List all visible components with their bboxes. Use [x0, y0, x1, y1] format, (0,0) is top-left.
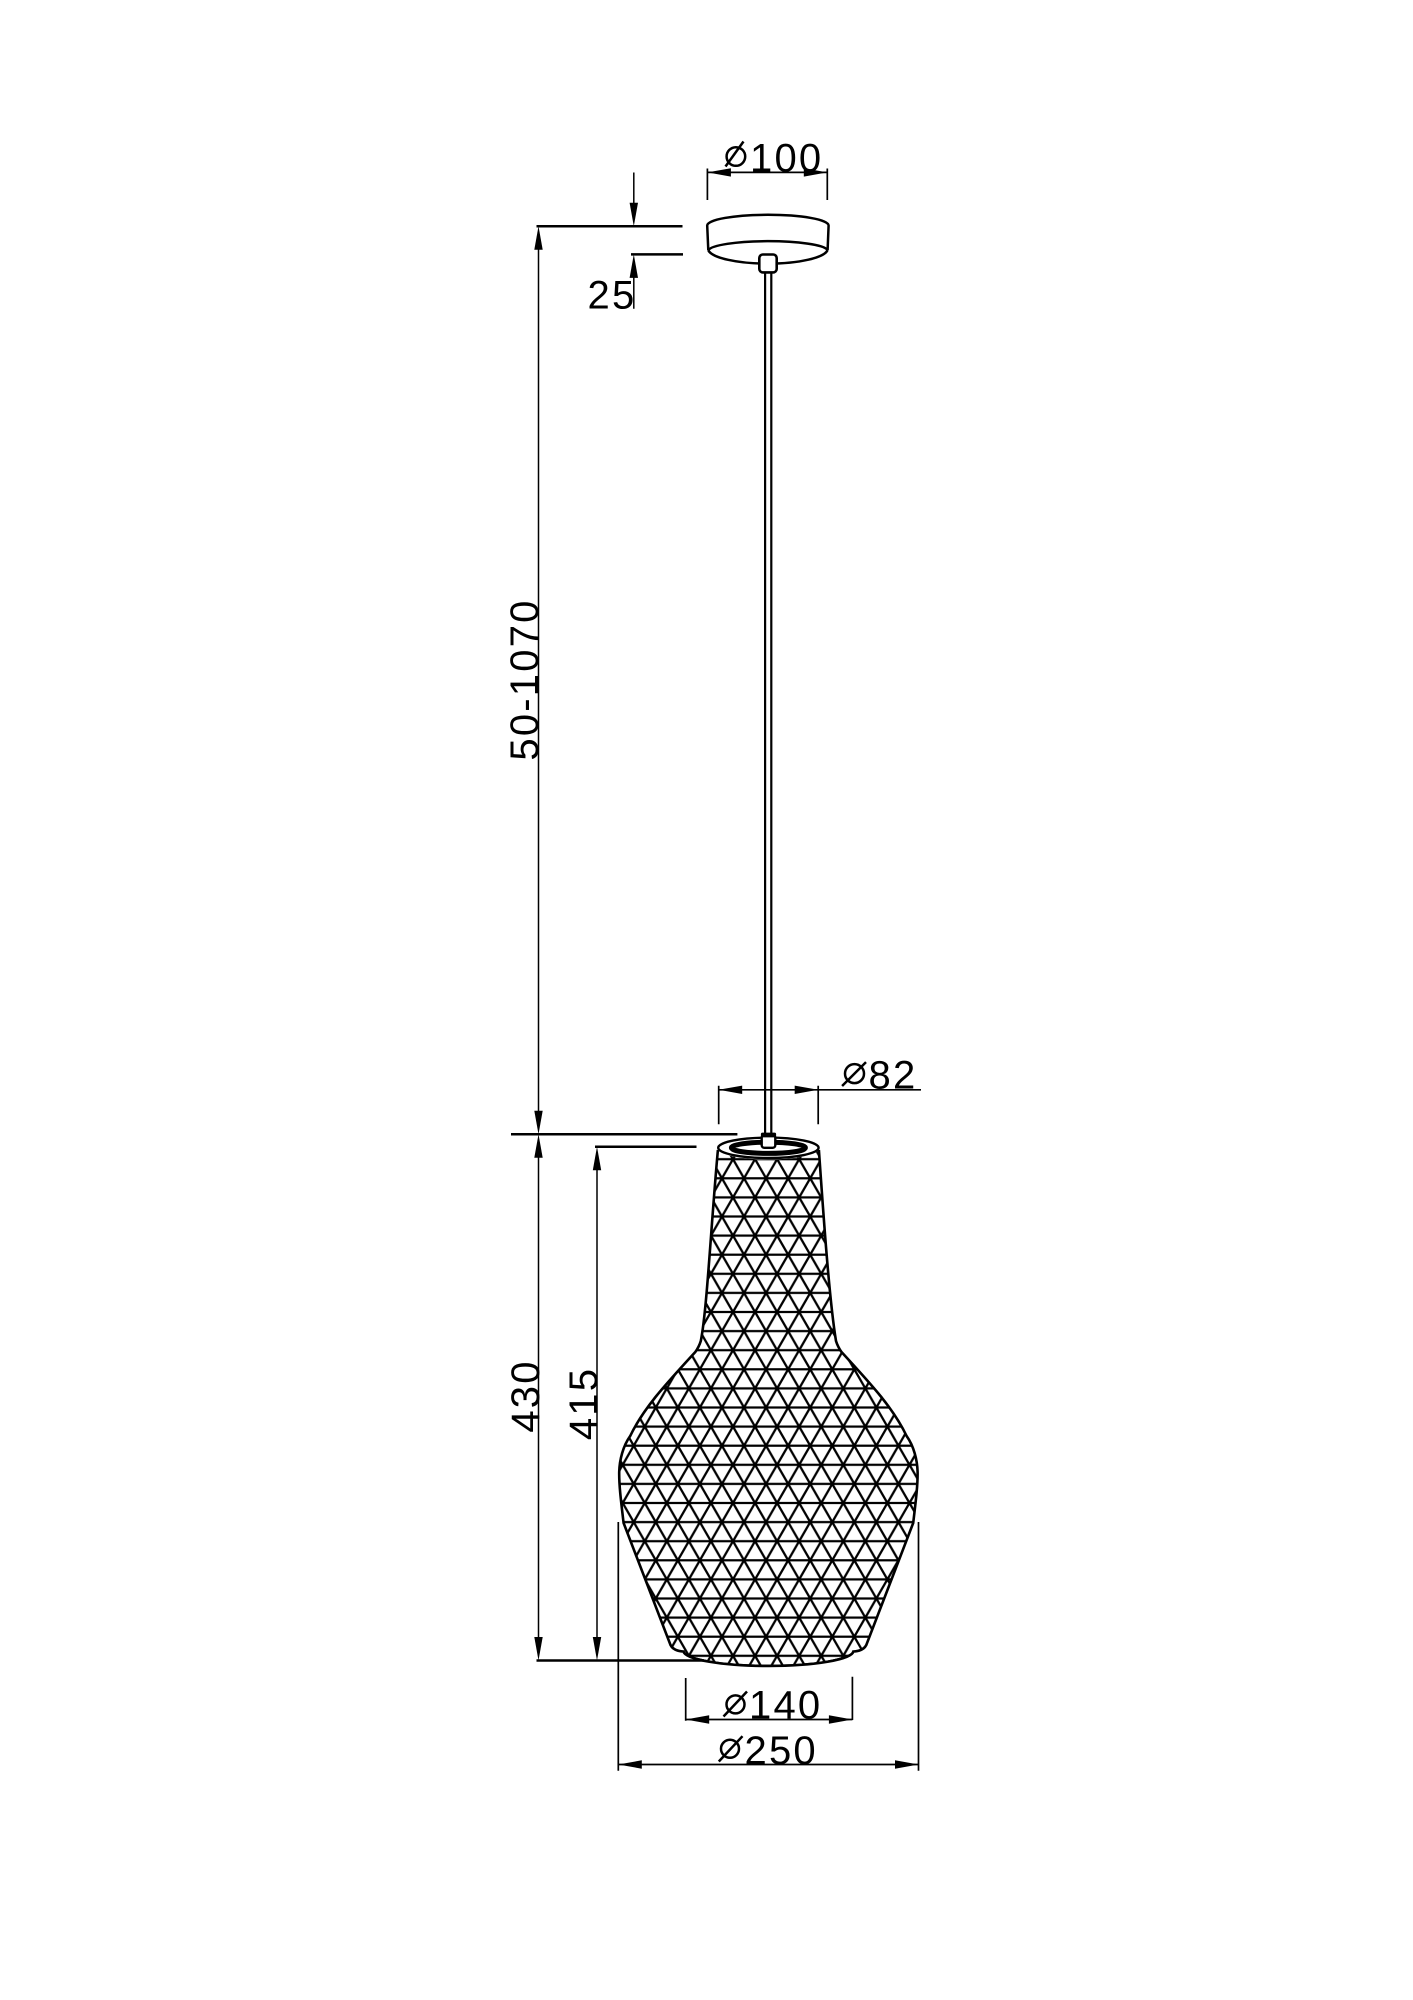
svg-text:140: 140: [749, 1684, 822, 1728]
svg-text:250: 250: [745, 1729, 818, 1773]
svg-text:50-1070: 50-1070: [503, 598, 547, 760]
svg-text:82: 82: [869, 1054, 918, 1098]
svg-text:25: 25: [588, 274, 637, 318]
svg-text:415: 415: [562, 1367, 606, 1440]
svg-text:430: 430: [504, 1359, 548, 1432]
svg-text:100: 100: [750, 136, 823, 180]
